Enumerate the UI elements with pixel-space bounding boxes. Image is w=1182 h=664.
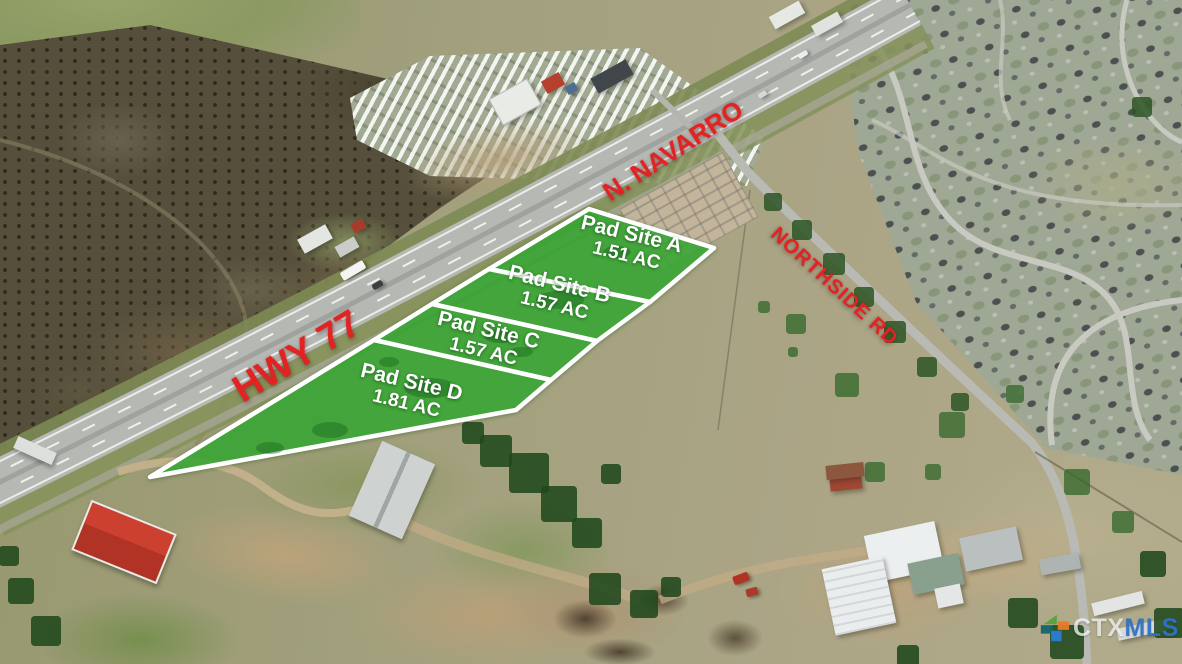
pad-sites-overlay	[0, 0, 1182, 664]
watermark-mls-text: MLS	[1125, 614, 1179, 643]
watermark-ctx-text: CTX	[1073, 614, 1125, 643]
ctxmls-watermark: CTXMLS	[1038, 612, 1179, 644]
ctxmls-logo-icon	[1038, 612, 1070, 644]
aerial-photo: HWY 77 N. NAVARRO NORTHSIDE RD Pad Site …	[0, 0, 1182, 664]
